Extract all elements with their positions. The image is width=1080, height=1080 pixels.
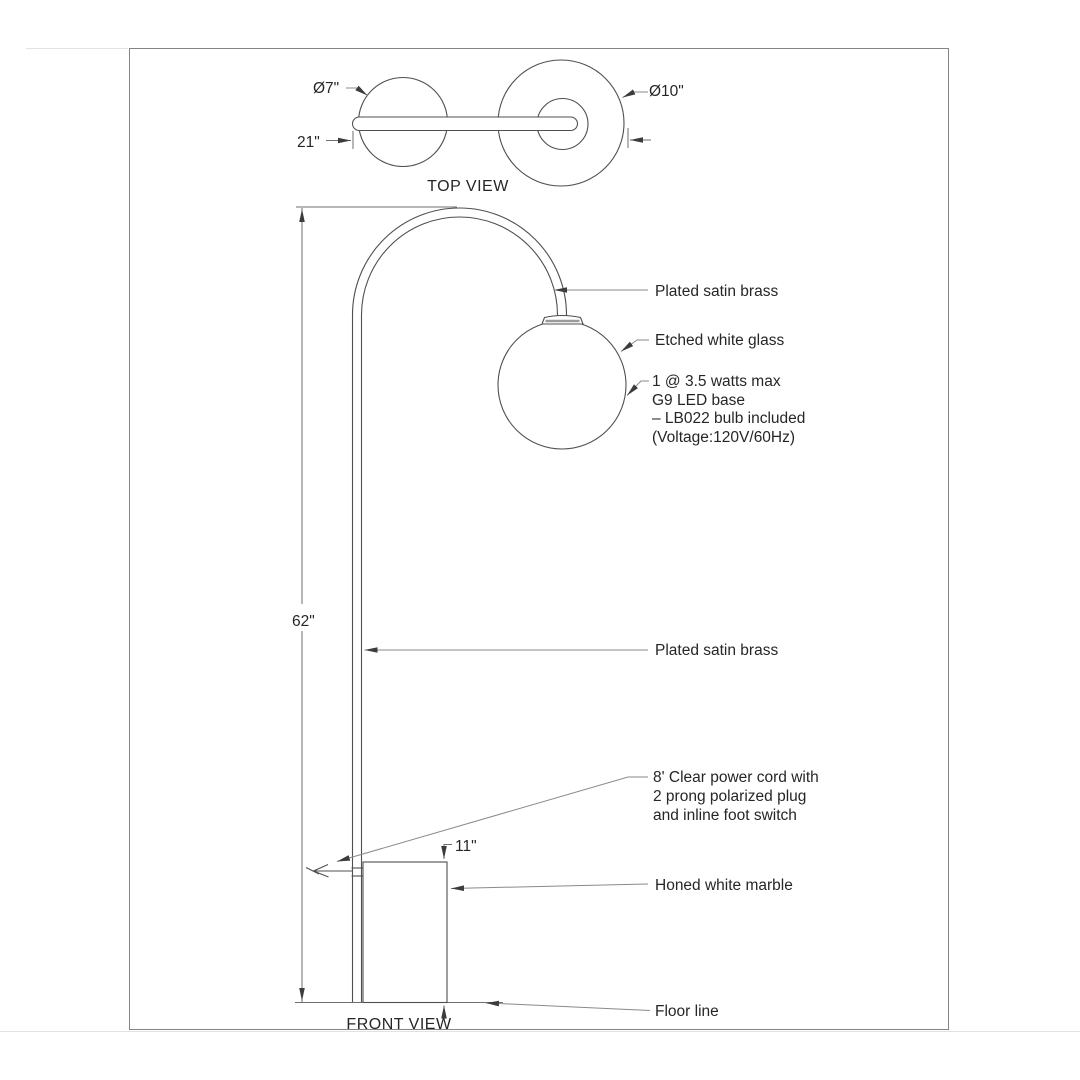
leader-globe-diameter <box>346 88 368 96</box>
leader-power-cord <box>337 777 648 862</box>
dim-62-label: 62" <box>292 613 315 630</box>
label-arm-material: Plated satin brass <box>655 283 778 300</box>
label-bulb-line2: G9 LED base <box>652 392 745 409</box>
leader-base-diameter <box>623 92 649 98</box>
top-view-arm-bar <box>353 117 578 131</box>
dim-arm-span-label: 21" <box>297 134 320 151</box>
front-view: 62" 11" Plated satin bras <box>288 207 819 1033</box>
label-shade-material: Etched white glass <box>655 332 784 349</box>
label-pole-material: Plated satin brass <box>655 642 778 659</box>
top-view-title: TOP VIEW <box>427 178 509 195</box>
top-view: Ø7" Ø10" 21" TOP VIEW <box>297 60 684 195</box>
leader-base-material <box>451 884 648 889</box>
label-cord-line1: 8' Clear power cord with <box>653 769 819 786</box>
label-floor-line: Floor line <box>655 1003 719 1020</box>
marble-base <box>363 862 447 1003</box>
arm-arch-outer <box>353 208 567 315</box>
label-cord-line3: and inline foot switch <box>653 807 797 824</box>
sheet-border <box>130 49 949 1030</box>
dim-globe-diameter-label: Ø7" <box>313 80 339 97</box>
dim-11-top-arrow <box>444 845 452 860</box>
leader-floor-line <box>486 1003 650 1011</box>
label-bulb-line1: 1 @ 3.5 watts max <box>652 373 781 390</box>
label-bulb-line4: (Voltage:120V/60Hz) <box>652 429 795 446</box>
technical-drawing: Ø7" Ø10" 21" TOP VIEW 62" <box>0 0 1080 1080</box>
glass-globe <box>498 321 626 449</box>
dim-11-label: 11" <box>455 838 477 855</box>
front-view-title: FRONT VIEW <box>346 1016 452 1033</box>
label-bulb-line3: – LB022 bulb included <box>652 410 805 427</box>
leader-shade-material <box>621 340 649 352</box>
drawing-sheet: Ø7" Ø10" 21" TOP VIEW 62" <box>0 0 1080 1080</box>
arm-arch-inner <box>362 217 558 315</box>
leader-bulb-info <box>627 381 649 396</box>
label-cord-line2: 2 prong polarized plug <box>653 788 806 805</box>
label-base-material: Honed white marble <box>655 877 793 894</box>
dim-base-diameter-label: Ø10" <box>649 83 684 100</box>
